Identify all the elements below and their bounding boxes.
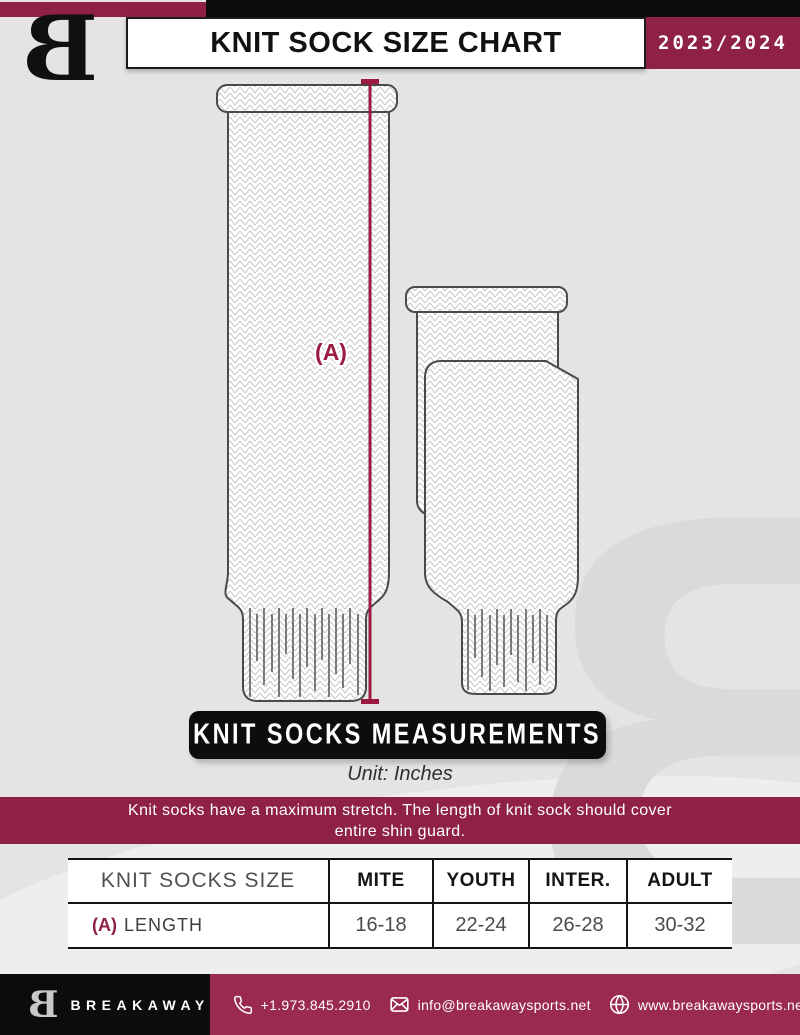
sock-medium-front <box>425 361 578 694</box>
size-table: KNIT SOCKS SIZE MITE YOUTH INTER. ADULT … <box>68 858 732 949</box>
notice-line-1: Knit socks have a maximum stretch. The l… <box>128 800 672 821</box>
knit-sock-size-chart-page: B B KNIT SOCK SIZE CHART 2023/2024 <box>0 0 800 1035</box>
page-title-box: KNIT SOCK SIZE CHART <box>126 17 646 69</box>
row-label: LENGTH <box>124 915 203 936</box>
season-badge: 2023/2024 <box>646 17 800 69</box>
phone-icon <box>233 995 253 1015</box>
email-address: info@breakawaysports.net <box>418 997 591 1013</box>
size-letter-badge: (A) <box>92 915 117 936</box>
table-header-adult: ADULT <box>626 860 732 904</box>
season-label: 2023/2024 <box>658 32 788 54</box>
unit-label: Unit: Inches <box>0 763 800 786</box>
footer: B BREAKAWAY +1.973.845.2910 info@breakaw… <box>0 974 800 1035</box>
email-icon <box>389 994 410 1015</box>
footer-contact-bar: +1.973.845.2910 info@breakawaysports.net… <box>210 974 800 1035</box>
footer-brand-block: B BREAKAWAY <box>0 974 210 1035</box>
email-contact[interactable]: info@breakawaysports.net <box>389 994 591 1015</box>
brand-logo-letter: B <box>22 0 98 102</box>
sock-illustration: (A) <box>0 75 800 720</box>
table-row-label-cell: (A) LENGTH <box>68 904 328 947</box>
footer-logo: B <box>28 987 58 1023</box>
table-value-inter: 26-28 <box>528 904 626 947</box>
top-right-black-strip <box>206 0 800 17</box>
website-contact[interactable]: www.breakawaysports.net <box>609 994 800 1015</box>
measurements-banner-label: KNIT SOCKS MEASUREMENTS <box>194 718 602 751</box>
phone-contact[interactable]: +1.973.845.2910 <box>233 995 371 1015</box>
brand-logo: B <box>22 4 98 94</box>
table-header-size: KNIT SOCKS SIZE <box>68 860 328 904</box>
notice-banner: Knit socks have a maximum stretch. The l… <box>0 797 800 844</box>
table-value-adult: 30-32 <box>626 904 732 947</box>
website-url: www.breakawaysports.net <box>638 997 800 1013</box>
table-value-youth: 22-24 <box>432 904 528 947</box>
table-value-mite: 16-18 <box>328 904 432 947</box>
table-header-mite: MITE <box>328 860 432 904</box>
table-header-inter: INTER. <box>528 860 626 904</box>
globe-icon <box>609 994 630 1015</box>
table-header-youth: YOUTH <box>432 860 528 904</box>
top-accent-bar <box>0 0 800 17</box>
sock-medium-cuff <box>406 287 567 312</box>
page-title: KNIT SOCK SIZE CHART <box>210 27 562 60</box>
footer-brand-name: BREAKAWAY <box>70 997 209 1013</box>
phone-number: +1.973.845.2910 <box>261 997 371 1013</box>
notice-line-2: entire shin guard. <box>335 821 466 842</box>
measurements-banner: KNIT SOCKS MEASUREMENTS <box>189 711 606 759</box>
measure-label-a: (A) <box>315 339 347 365</box>
